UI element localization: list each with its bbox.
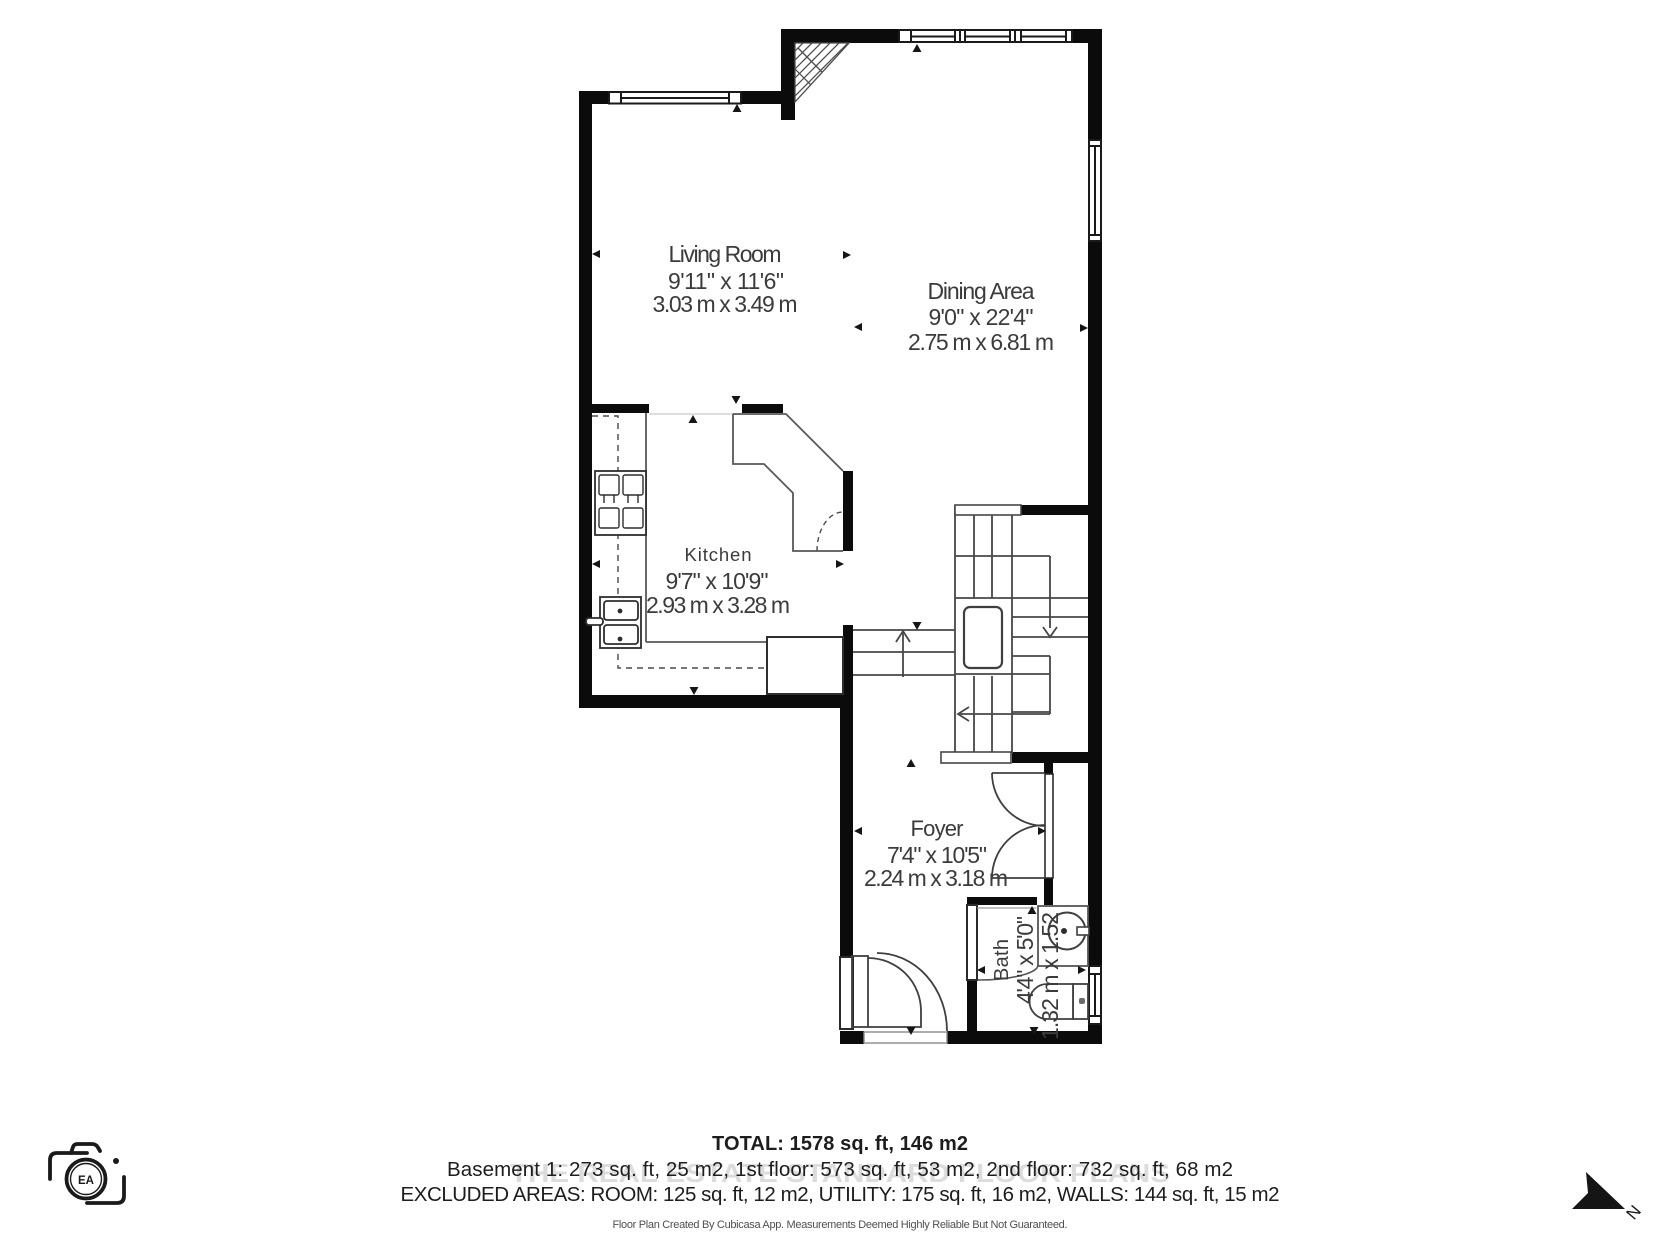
svg-text:4'4" x 5'0": 4'4" x 5'0" <box>1012 916 1038 1004</box>
svg-text:Floor Plan Created By Cubicasa: Floor Plan Created By Cubicasa App. Meas… <box>613 1219 1068 1231</box>
svg-text:Basement 1: 273 sq. ft, 25 m2,: Basement 1: 273 sq. ft, 25 m2, 1st floor… <box>447 1158 1233 1181</box>
svg-text:2.93 m x 3.28 m: 2.93 m x 3.28 m <box>646 592 790 618</box>
svg-text:Kitchen: Kitchen <box>685 544 752 565</box>
svg-text:2.75 m x 6.81 m: 2.75 m x 6.81 m <box>908 329 1054 355</box>
svg-text:1.32 m x 1.52: 1.32 m x 1.52 <box>1037 912 1063 1040</box>
svg-text:9'0" x 22'4": 9'0" x 22'4" <box>929 304 1034 330</box>
svg-text:Living Room: Living Room <box>669 241 782 267</box>
svg-text:2.24 m x 3.18 m: 2.24 m x 3.18 m <box>864 865 1008 891</box>
svg-text:TOTAL: 1578 sq. ft, 146 m2: TOTAL: 1578 sq. ft, 146 m2 <box>712 1133 968 1155</box>
svg-text:Foyer: Foyer <box>911 816 964 841</box>
svg-text:EA: EA <box>78 1175 94 1187</box>
svg-text:3.03 m x 3.49 m: 3.03 m x 3.49 m <box>653 291 798 317</box>
svg-text:EXCLUDED AREAS: ROOM: 125 sq.: EXCLUDED AREAS: ROOM: 125 sq. ft, 12 m2,… <box>401 1183 1280 1206</box>
svg-text:Dining Area: Dining Area <box>928 278 1035 304</box>
svg-text:Bath: Bath <box>991 939 1013 981</box>
svg-text:9'7" x 10'9": 9'7" x 10'9" <box>666 568 769 594</box>
